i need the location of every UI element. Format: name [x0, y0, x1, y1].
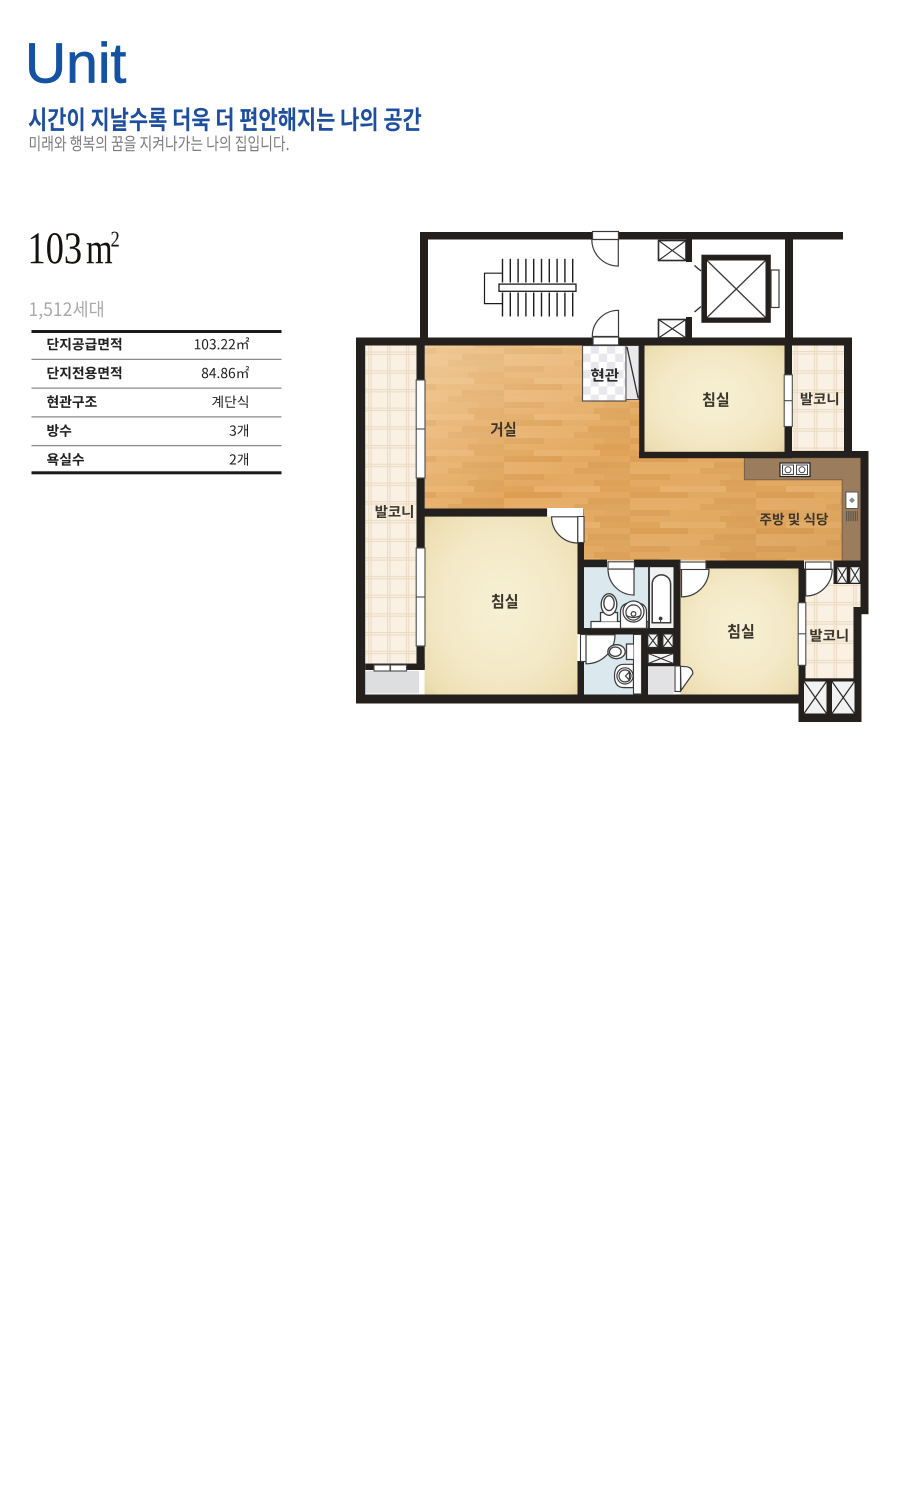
svg-text:Unit: Unit — [25, 32, 127, 96]
